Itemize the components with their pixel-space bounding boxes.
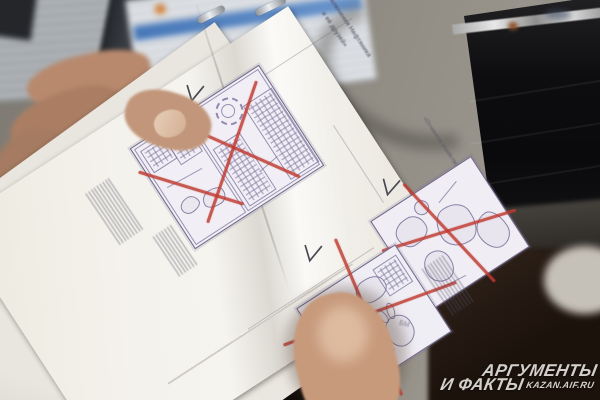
webpage-logo-dot <box>154 4 166 15</box>
tower-reflection-orange <box>508 22 518 30</box>
thumb-highlight <box>318 306 368 362</box>
animal-sketch <box>177 193 202 217</box>
sketch-line <box>438 181 457 204</box>
watermark-line2: И ФАКТЫ <box>438 375 524 394</box>
watermark: АРГУМЕНТЫ И ФАКТЫKAZAN.AIF.RU <box>438 362 598 394</box>
watermark-site: KAZAN.AIF.RU <box>525 380 595 390</box>
tower-reflection-blue <box>545 10 571 19</box>
photo-scene: «Приключения Нефтяника и её друзей» «Отч… <box>0 0 600 400</box>
checkmark-icon <box>298 242 325 266</box>
monitor-corner <box>0 0 37 41</box>
